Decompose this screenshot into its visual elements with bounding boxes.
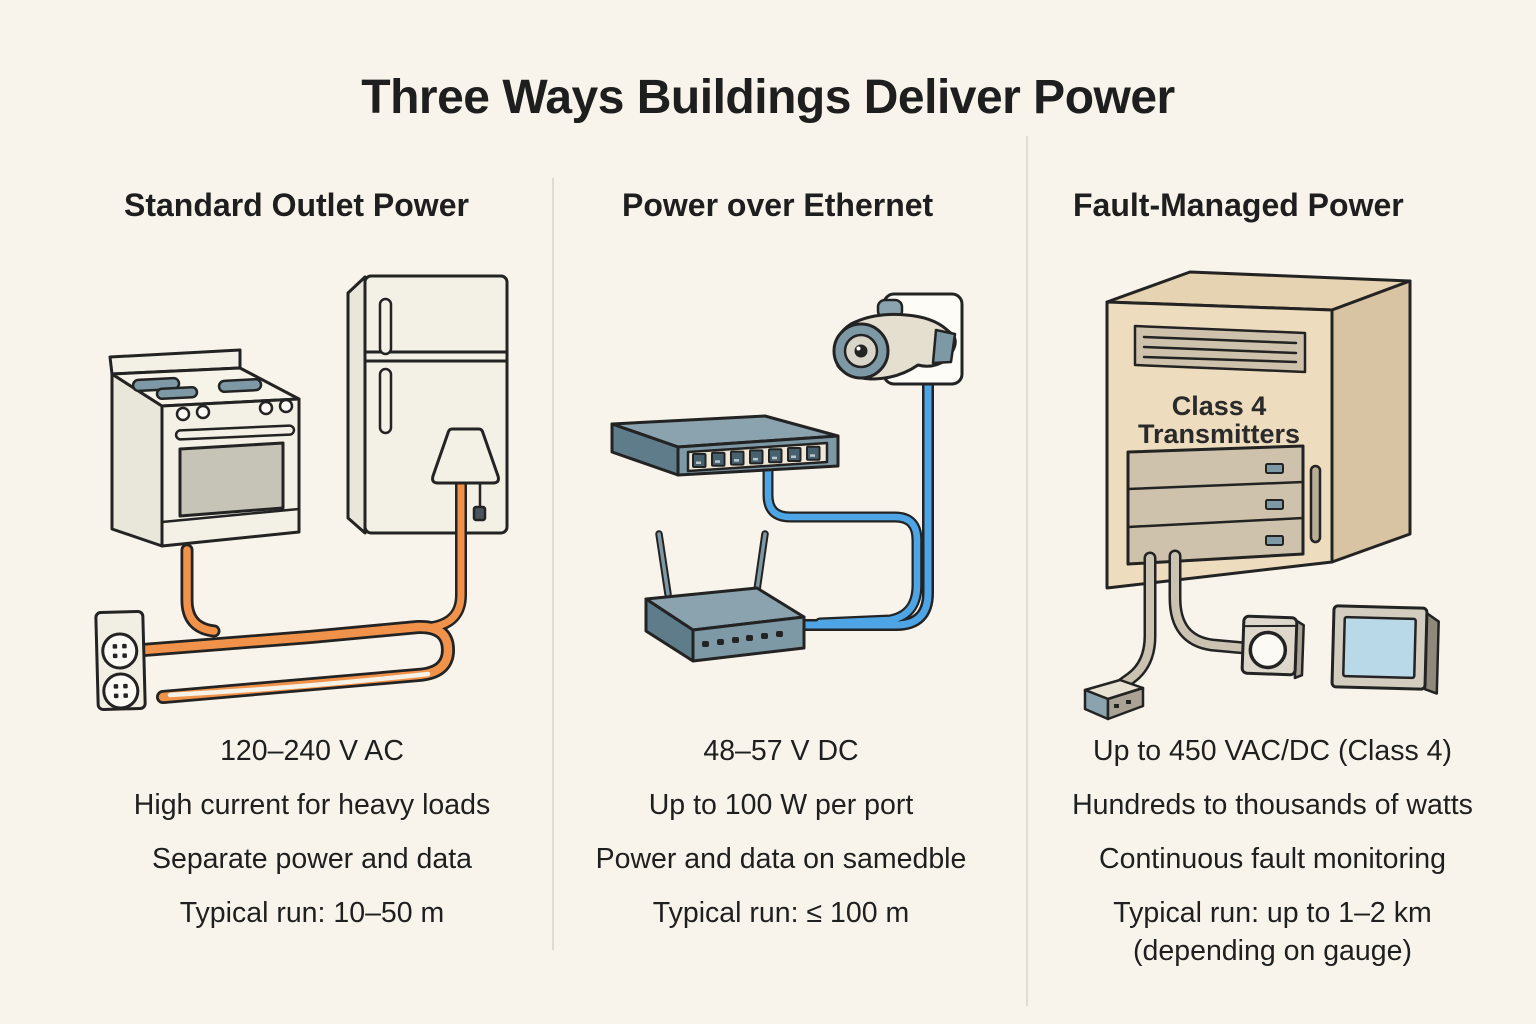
ethernet-cables bbox=[768, 380, 928, 625]
fault-managed-specs: Up to 450 VAC/DC (Class 4) Hundreds to t… bbox=[1035, 736, 1510, 990]
column-header-standard-outlet: Standard Outlet Power bbox=[124, 188, 469, 222]
cabinet-label-line1: Class 4 bbox=[1172, 391, 1267, 421]
voltage-line: 48–57 V DC bbox=[556, 736, 1006, 766]
spec-line: High current for heavy loads bbox=[82, 790, 542, 820]
stove-icon bbox=[110, 350, 299, 546]
wall-outlet-icon bbox=[96, 611, 146, 709]
infographic: Three Ways Buildings Deliver Power Stand… bbox=[0, 0, 1536, 1024]
spec-line: Continuous fault monitoring bbox=[1035, 844, 1510, 874]
standard-outlet-specs: 120–240 V AC High current for heavy load… bbox=[82, 736, 542, 952]
dial-device-icon bbox=[1242, 616, 1304, 678]
run-line: Typical run: ≤ 100 m bbox=[556, 898, 1006, 928]
security-camera-icon bbox=[834, 294, 962, 384]
page-title: Three Ways Buildings Deliver Power bbox=[0, 70, 1536, 125]
router-icon bbox=[646, 534, 804, 661]
cabinet-handle bbox=[1311, 466, 1320, 542]
voltage-line: 120–240 V AC bbox=[82, 736, 542, 766]
column-divider-1 bbox=[552, 178, 554, 950]
standard-outlet-illustration bbox=[80, 255, 550, 730]
transmitter-cabinet-icon: Class 4 Transmitters bbox=[1107, 272, 1410, 588]
column-header-poe: Power over Ethernet bbox=[622, 188, 933, 222]
fault-managed-illustration: Class 4 Transmitters bbox=[1040, 258, 1510, 728]
poe-specs: 48–57 V DC Up to 100 W per port Power an… bbox=[556, 736, 1006, 952]
column-header-fault-managed: Fault-Managed Power bbox=[1073, 188, 1404, 222]
cabinet-label-line2: Transmitters bbox=[1138, 419, 1300, 449]
spec-line: Hundreds to thousands of watts bbox=[1035, 790, 1510, 820]
run-line: Typical run: up to 1–2 km bbox=[1035, 898, 1510, 928]
spec-line: Power and data on samedble bbox=[556, 844, 1006, 874]
display-panel-icon bbox=[1332, 606, 1439, 694]
spec-line: Separate power and data bbox=[82, 844, 542, 874]
run-line: Typical run: 10–50 m bbox=[82, 898, 542, 928]
refrigerator-icon bbox=[348, 276, 507, 533]
network-switch-icon bbox=[612, 416, 838, 475]
poe-illustration bbox=[570, 258, 1020, 728]
spec-line: Up to 100 W per port bbox=[556, 790, 1006, 820]
run-continuation-line: (depending on gauge) bbox=[1035, 936, 1510, 966]
display-screen bbox=[1343, 617, 1416, 678]
column-divider-2 bbox=[1026, 136, 1028, 1006]
plug-connector-icon bbox=[1085, 680, 1143, 719]
voltage-line: Up to 450 VAC/DC (Class 4) bbox=[1035, 736, 1510, 766]
